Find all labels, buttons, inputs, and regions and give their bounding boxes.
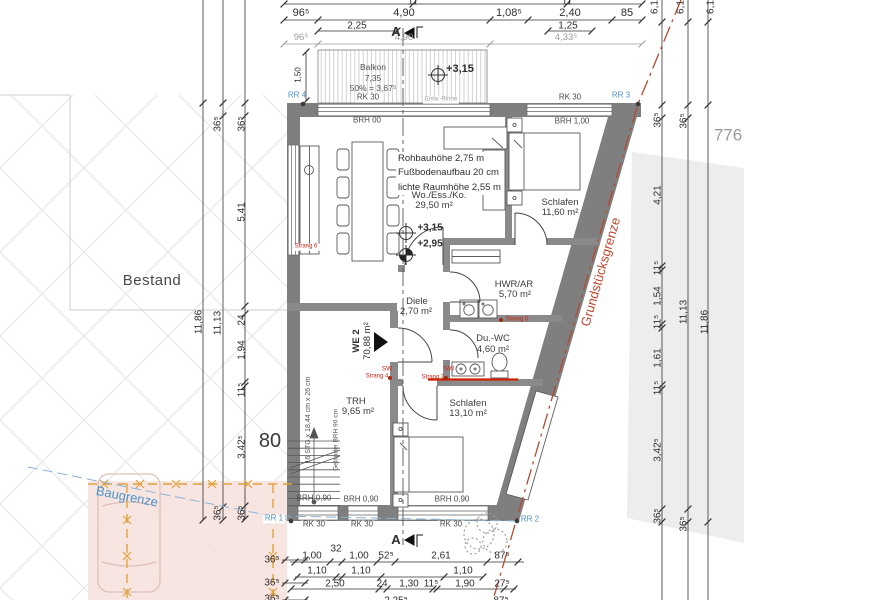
- dim-label: 6,1: [706, 0, 717, 14]
- strang5-label: Strang 5: [506, 317, 529, 324]
- strang4-label: Strang 4: [366, 374, 389, 381]
- rr3-label: RR 3: [612, 92, 630, 101]
- rr4-label: RR 4: [288, 92, 306, 101]
- sw-label: SW: [444, 365, 454, 372]
- dim-label: 24: [237, 314, 248, 325]
- dim-label: 87⁵: [494, 551, 509, 562]
- gray-dimension-line: [281, 41, 646, 48]
- window-label: RK 30: [301, 521, 327, 530]
- dim-label: 2,25: [347, 21, 366, 32]
- dim-label: 1,10: [307, 566, 326, 577]
- dim-label: 36⁵: [653, 508, 664, 523]
- dim-label: 36⁵: [653, 112, 664, 127]
- bestand-label: Bestand: [123, 273, 182, 290]
- dim-label: 1,94: [237, 340, 248, 359]
- dim-label: 36⁵: [237, 116, 248, 131]
- window-label: BRH 0,90: [435, 496, 470, 505]
- room-area-hwr: 5,70 m²: [499, 290, 531, 300]
- dim-label: 4,90: [393, 7, 414, 19]
- dim-label: 36⁵: [679, 516, 690, 531]
- dim-label: 6,1: [676, 0, 687, 14]
- room-area-schlafen1: 11,60 m²: [542, 208, 579, 218]
- dim-label: 11,13: [213, 311, 224, 335]
- dim-label: 2,25⁵: [384, 596, 408, 600]
- dim-label: 1,30: [399, 579, 418, 590]
- balcony-label: Balkon 7,35 50% = 3,67⁵: [350, 62, 397, 94]
- dim-label: 36⁵: [213, 505, 224, 520]
- window-label: RK 30: [349, 521, 375, 530]
- unit-label: WE 2: [352, 329, 362, 352]
- dim-label: 36⁵: [264, 555, 279, 566]
- plot-number: 776: [714, 127, 742, 146]
- dim-label: 6,1: [650, 0, 661, 14]
- dim-label: 11⁵: [237, 383, 248, 398]
- dim-label: 3,42⁵: [653, 438, 664, 462]
- dim-label-gray: 4,33⁵: [555, 33, 577, 43]
- dim-label: 11,86: [700, 310, 711, 334]
- dim-label: 11⁵: [653, 261, 664, 276]
- dim-label: 36⁵: [213, 116, 224, 131]
- room-area-wohnen: 29,50 m²: [415, 201, 453, 211]
- dim-label: 96⁵: [293, 7, 310, 19]
- dim-label: 85: [621, 7, 633, 19]
- dim-label: 36⁵: [264, 594, 279, 600]
- dim-label: 11,86: [194, 310, 205, 334]
- level-label: +3,15: [417, 223, 442, 234]
- room-area-diele: 2,70 m²: [400, 307, 432, 317]
- rr2-label: RR 2: [521, 516, 539, 525]
- bed-top: [507, 118, 580, 205]
- dim-label: 5,41: [237, 202, 248, 221]
- construction-notes: Rohbauhöhe 2,75 m Fußbodenaufbau 20 cm l…: [396, 152, 503, 195]
- vanity-double-sink-icon: [452, 362, 484, 376]
- dim-label: 1,10: [453, 566, 472, 577]
- dim-label: 2,61: [431, 551, 450, 562]
- dim-label: 36⁵: [237, 505, 248, 520]
- window-label: BRH 0,90: [344, 496, 379, 505]
- dim-label: 4,21: [653, 185, 664, 204]
- dim-label: 24: [376, 579, 387, 590]
- dim-label: 1,90: [455, 579, 474, 590]
- dim-label: 36⁵: [679, 113, 690, 128]
- neighbour-plot-area: [627, 152, 744, 543]
- dim-label: 11⁵: [653, 381, 664, 396]
- window-label: RK 30: [355, 94, 381, 103]
- sw-label: SW: [382, 365, 392, 372]
- balcony: [318, 50, 487, 103]
- dim-label: 11,13: [679, 300, 690, 324]
- window-label: BRH 1,00: [555, 118, 590, 127]
- level-label: +3,15: [446, 63, 474, 75]
- room-area-schlafen2: 13,10 m²: [449, 409, 487, 419]
- door-hwr: [450, 272, 480, 302]
- floor-plan-sheet: 11 11 96⁵ 4,90 1,08⁵ 2,40 85 2,25 1,25 9…: [0, 0, 888, 600]
- section-marker-bottom: A: [391, 533, 400, 547]
- floor-plan-drawing: [0, 0, 888, 600]
- rr1-label: RR 1: [263, 515, 285, 524]
- room-area-duwc: 4,60 m²: [477, 345, 509, 355]
- dim-label: 3,42⁵: [237, 435, 248, 459]
- gutter-label: Entw.-Rinne: [423, 97, 459, 104]
- room-area-trh: 9,65 m²: [342, 407, 374, 417]
- dim-label: 27⁵: [494, 579, 509, 590]
- dim-label: 1,25: [558, 21, 577, 32]
- dim-label: 11⁵: [424, 579, 439, 590]
- dim-label: 87⁵: [493, 596, 508, 600]
- room-name-duwc: Du.-WC: [476, 334, 510, 344]
- dim-label-gray: 96⁵: [294, 33, 309, 43]
- dining-table-with-chairs: [337, 142, 399, 261]
- dim-label: 1,54: [653, 286, 664, 305]
- dim-label: 1,00: [302, 551, 321, 562]
- toilet-icon: [491, 353, 508, 378]
- dim-label: 52⁵: [378, 551, 393, 562]
- strang6-label: Strang 6: [293, 244, 320, 251]
- entrance-arrow-icon: [374, 332, 388, 352]
- level-label: +2,95: [417, 239, 442, 250]
- dim-label: 1,00: [349, 551, 368, 562]
- dim-label: 1,10: [351, 566, 370, 577]
- door-duwc: [450, 330, 478, 358]
- window-label: BRH 00: [353, 117, 381, 126]
- dim-label: 1,08⁵: [496, 7, 522, 19]
- window-label: RK 30: [438, 521, 464, 530]
- stair-railing-label: Geländer BRH 90 cm: [332, 409, 339, 471]
- dim-label: 36⁵: [264, 578, 279, 589]
- dim-label: 11⁵: [653, 315, 664, 330]
- hwr-counter: [452, 250, 500, 263]
- strang3-label: Strang 3: [422, 375, 445, 382]
- window-label: BRH 0,90: [297, 495, 332, 504]
- dim-label: 2,50: [325, 579, 344, 590]
- dim-label: 1,50: [295, 67, 304, 83]
- dim-label: 2,40: [559, 7, 580, 19]
- door-bedroom-bottom: [403, 386, 437, 420]
- dim-label: 32: [330, 544, 341, 555]
- unit-area: 70,88 m²: [363, 322, 373, 360]
- section-marker-top: A: [391, 25, 400, 39]
- kitchen-counter: [300, 146, 319, 254]
- dim-label: 1,61: [653, 348, 664, 367]
- stair-steps-label: 16 STG x 18,44 cm x 26 cm: [305, 377, 313, 464]
- street-number: 80: [259, 430, 281, 452]
- window-label: RK 30: [557, 94, 583, 103]
